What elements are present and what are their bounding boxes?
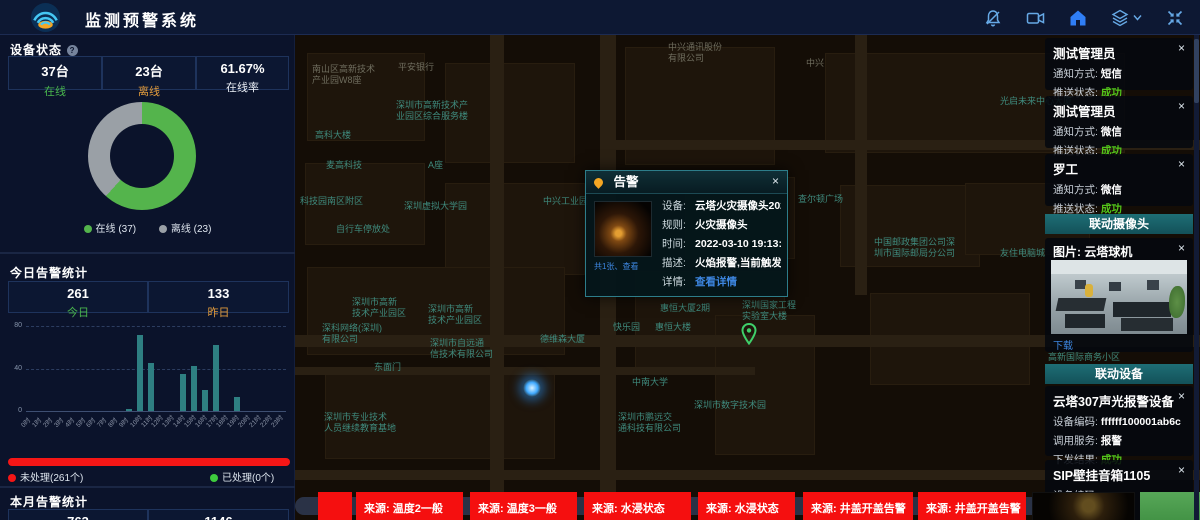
- map-label: 中南大学: [632, 377, 668, 388]
- map-label: 南山区高新技术 产业园W8座: [312, 64, 375, 87]
- map-label: 深圳市数字技术园: [694, 400, 766, 411]
- map-label: 高科大楼: [315, 130, 351, 141]
- video-camera-icon[interactable]: [1026, 9, 1045, 27]
- scrollbar-track[interactable]: [1194, 35, 1199, 520]
- linked-device-card: ×云塔307声光报警设备设备编码:ffffff100001ab6c调用服务:报警…: [1045, 386, 1193, 456]
- today-alarm-title: 今日告警统计: [10, 264, 88, 281]
- photo-wall: [1051, 260, 1187, 274]
- close-icon[interactable]: ×: [1178, 463, 1185, 477]
- map-label: 深圳市高新技术产 业园区综合服务楼: [396, 100, 468, 123]
- close-icon[interactable]: ×: [1178, 389, 1185, 403]
- app-logo-icon: [30, 2, 61, 33]
- bottom-alert-card[interactable]: 来源: 温度2一般: [356, 492, 463, 520]
- notification-method-value: 微信: [1101, 126, 1122, 138]
- y-axis-tick: 40: [8, 365, 22, 372]
- notification-method-value: 短信: [1101, 68, 1122, 80]
- map-label: 深科网络(深圳) 有限公司: [322, 323, 382, 346]
- device-status-title-text: 设备状态: [10, 43, 62, 57]
- bottom-alert-image[interactable]: [1140, 492, 1200, 520]
- map-label: 深圳市专业技术 人员继续教育基地: [324, 412, 396, 435]
- map-label: A座: [428, 160, 443, 171]
- close-icon[interactable]: ×: [1178, 241, 1185, 255]
- notification-method-row: 通知方式:微信: [1053, 124, 1185, 139]
- map-label: 惠恒大楼: [655, 322, 691, 333]
- map-label: 德维森大厦: [540, 334, 585, 345]
- map-label: 高新国际商务小区: [1048, 352, 1120, 363]
- map-label: 中兴通讯股份 有限公司: [668, 42, 722, 65]
- device-online-donut-chart: [88, 102, 196, 210]
- processed-legend: 已处理(0个): [210, 469, 274, 484]
- map-label: 科技园南区附区: [300, 196, 363, 207]
- photo-desk: [1121, 318, 1173, 331]
- notification-recipient: 测试管理员: [1053, 43, 1185, 62]
- y-axis-tick: 0: [8, 407, 22, 414]
- app-header: 监测预警系统: [0, 0, 1200, 35]
- notification-card: ×罗工通知方式:微信推送状态:成功: [1045, 154, 1193, 206]
- close-icon[interactable]: ×: [1178, 99, 1185, 113]
- exit-fullscreen-icon[interactable]: [1166, 9, 1184, 27]
- camera-snapshot-title: 图片: 云塔球机: [1053, 243, 1132, 260]
- snapshot-count-link[interactable]: 共1张、查看: [594, 261, 654, 272]
- bottom-alert-card[interactable]: 来源: 温度3一般: [470, 492, 577, 520]
- camera-snapshot-card: × 图片: 云塔球机 下载: [1045, 238, 1193, 352]
- home-icon[interactable]: [1069, 9, 1087, 27]
- hourly-alarm-bar-chart: 040800时1时2时3时4时5时6时7时8时9时10时11时12时13时14时…: [10, 320, 292, 448]
- legend-dot-unprocessed: [8, 474, 16, 482]
- alert-field-label: 时间:: [662, 238, 695, 251]
- map-label: 惠恒大厦2期: [660, 303, 710, 314]
- map-label: 麦高科技: [326, 160, 362, 171]
- bar: [202, 390, 208, 411]
- stat-month-previous: 1146: [148, 509, 289, 520]
- alert-field-label: 描述:: [662, 257, 695, 270]
- photo-desk: [1065, 314, 1105, 328]
- photo-monitor: [1147, 280, 1159, 290]
- alert-popup: 告警 × 共1张、查看 设备:云塔火灾摄像头202规则:火灾摄像头时间:2022…: [585, 170, 788, 297]
- bottom-alert-card[interactable]: 来源: 水浸状态: [698, 492, 795, 520]
- map-label: 自行车停放处: [336, 224, 390, 235]
- legend-dot-processed: [210, 474, 218, 482]
- notification-recipient: 测试管理员: [1053, 101, 1185, 120]
- chevron-down-icon: [1133, 14, 1142, 21]
- alert-popup-title: 告警: [613, 171, 638, 194]
- stat-month-current: 763: [8, 509, 148, 520]
- gridline: [26, 326, 286, 327]
- app-root: 南山区高新技术 产业园W8座平安银行深圳市高新技术产 业园区综合服务楼高科大楼麦…: [0, 0, 1200, 520]
- page-title: 监测预警系统: [85, 7, 199, 31]
- map-label: 快乐园: [613, 322, 640, 333]
- alert-popup-fields: 设备:云塔火灾摄像头202规则:火灾摄像头时间:2022-03-10 19:13…: [662, 200, 781, 295]
- alert-field-label: 规则:: [662, 219, 695, 232]
- x-axis-line: [26, 411, 286, 412]
- scrollbar-handle[interactable]: [1194, 39, 1199, 103]
- linked-device-field-label: 调用服务:: [1053, 435, 1098, 447]
- notification-status-label: 推送状态:: [1053, 203, 1098, 215]
- notification-method-row: 通知方式:微信: [1053, 182, 1185, 197]
- notification-method-label: 通知方式:: [1053, 68, 1098, 80]
- legend-dot-online: [84, 225, 92, 233]
- map-label: 深圳虚拟大学园: [404, 201, 467, 212]
- map-label: 中国邮政集团公司深 圳市国际邮局分公司: [874, 237, 955, 260]
- help-icon[interactable]: ?: [67, 45, 78, 56]
- stat-online-count: 37台 在线: [8, 56, 102, 90]
- alarm-snapshot-image[interactable]: [594, 201, 652, 257]
- unprocessed-legend: 未处理(261个): [8, 469, 83, 484]
- photo-person: [1085, 284, 1093, 297]
- alert-field-value: 云塔火灾摄像头202: [695, 200, 781, 213]
- legend-online: 在线 (37): [96, 224, 137, 235]
- map-road: [490, 35, 504, 520]
- close-icon[interactable]: ×: [1178, 157, 1185, 171]
- notification-method-value: 微信: [1101, 184, 1122, 196]
- linked-device-field-row: 设备编码:ffffff100001ab6c: [1053, 414, 1185, 429]
- donut-hole: [110, 124, 174, 188]
- alert-field-row: 时间:2022-03-10 19:13:07: [662, 238, 781, 251]
- close-icon[interactable]: ×: [1178, 41, 1185, 55]
- location-pin-icon[interactable]: [741, 323, 757, 350]
- notification-card: ×测试管理员通知方式:微信推送状态:成功: [1045, 96, 1193, 148]
- bar: [148, 363, 154, 411]
- bar: [137, 335, 143, 412]
- alarm-pin-icon: [592, 176, 605, 189]
- legend-offline: 离线 (23): [171, 224, 212, 235]
- layers-icon[interactable]: [1111, 9, 1142, 27]
- notification-card: ×测试管理员通知方式:短信推送状态:成功: [1045, 38, 1193, 90]
- linked-device-field-row: 调用服务:报警: [1053, 433, 1185, 448]
- notification-recipient: 罗工: [1053, 159, 1185, 178]
- notification-method-row: 通知方式:短信: [1053, 66, 1185, 81]
- map-road: [295, 367, 755, 375]
- close-icon[interactable]: ×: [772, 174, 779, 188]
- alert-field-row: 规则:火灾摄像头: [662, 219, 781, 232]
- alert-field-label: 设备:: [662, 200, 695, 213]
- bottom-alert-card[interactable]: 来源: 井盖开盖告警: [918, 492, 1026, 520]
- map-label: 平安银行: [398, 62, 434, 73]
- bar: [126, 409, 132, 411]
- map-road: [855, 35, 867, 295]
- photo-monitor: [1109, 282, 1121, 291]
- alert-field-value: 火焰报警,当前触发值为...: [695, 257, 781, 270]
- unprocessed-progress-bar: [8, 458, 290, 466]
- bar: [180, 374, 186, 411]
- download-link[interactable]: 下载: [1053, 337, 1073, 352]
- alert-field-row: 详情:查看详情: [662, 276, 781, 289]
- linked-device-title: SIP壁挂音箱1105: [1053, 465, 1185, 484]
- linked-device-field-value: 报警: [1101, 435, 1122, 447]
- linked-devices-header: 联动设备: [1045, 364, 1193, 384]
- stat-offline-count: 23台 离线: [102, 56, 196, 90]
- gridline: [26, 369, 286, 370]
- alert-field-row: 描述:火焰报警,当前触发值为...: [662, 257, 781, 270]
- bar: [234, 397, 240, 411]
- linked-cameras-header: 联动摄像头: [1045, 214, 1193, 234]
- legend-dot-offline: [159, 225, 167, 233]
- divider: [0, 252, 295, 254]
- map-label: 深圳市高新 技术产业园区: [352, 297, 406, 320]
- alert-field-row: 设备:云塔火灾摄像头202: [662, 200, 781, 213]
- camera-snapshot-image: [1051, 260, 1187, 334]
- bar: [191, 366, 197, 411]
- bell-mute-icon[interactable]: [984, 9, 1002, 27]
- month-alarm-title: 本月告警统计: [10, 493, 88, 510]
- bottom-alert-card-partial[interactable]: [318, 492, 352, 520]
- notification-status-value: 成功: [1101, 203, 1122, 215]
- stat-today-alarms: 261 今日: [8, 281, 148, 313]
- map-label: 深圳市高新 技术产业园区: [428, 304, 482, 327]
- bottom-alert-card[interactable]: 来源: 水浸状态: [584, 492, 691, 520]
- map-label: 中兴工业园: [543, 196, 588, 207]
- divider: [0, 486, 295, 488]
- map-label: 深圳国家工程 实验室大楼: [742, 300, 796, 323]
- map-label: 东面门: [374, 362, 401, 373]
- alert-field-label: 详情:: [662, 276, 695, 289]
- view-details-link[interactable]: 查看详情: [695, 276, 737, 289]
- alert-field-value: 2022-03-10 19:13:07: [695, 238, 781, 251]
- notification-method-label: 通知方式:: [1053, 126, 1098, 138]
- device-marker-blue-dot[interactable]: [523, 379, 541, 397]
- alert-popup-header: 告警 ×: [586, 171, 787, 194]
- notification-status-row: 推送状态:成功: [1053, 201, 1185, 216]
- y-axis-tick: 80: [8, 322, 22, 329]
- linked-device-title: 云塔307声光报警设备: [1053, 391, 1185, 410]
- bottom-alert-card[interactable]: 来源: 井盖开盖告警: [803, 492, 913, 520]
- linked-device-field-value: ffffff100001ab6c: [1101, 416, 1181, 428]
- alert-field-value: 火灾摄像头: [695, 219, 748, 232]
- photo-plant: [1169, 286, 1185, 318]
- photo-desk: [1056, 298, 1107, 311]
- stat-yesterday-alarms: 133 昨日: [148, 281, 289, 313]
- linked-device-field-label: 设备编码:: [1053, 416, 1098, 428]
- map-label: 友住电脑城: [1000, 248, 1045, 259]
- donut-legend: 在线 (37) 离线 (23): [0, 220, 295, 235]
- map-label: 深圳市自远通 信技术有限公司: [430, 338, 493, 361]
- photo-desk: [1113, 302, 1171, 317]
- stat-online-rate: 61.67% 在线率: [196, 56, 289, 90]
- map-label: 查尔顿广场: [798, 194, 843, 205]
- notification-method-label: 通知方式:: [1053, 184, 1098, 196]
- map-label: 中兴: [806, 58, 824, 69]
- bottom-alert-image[interactable]: [1032, 492, 1135, 520]
- bar: [213, 345, 219, 411]
- map-label: 深圳市鹏远交 通科技有限公司: [618, 412, 681, 435]
